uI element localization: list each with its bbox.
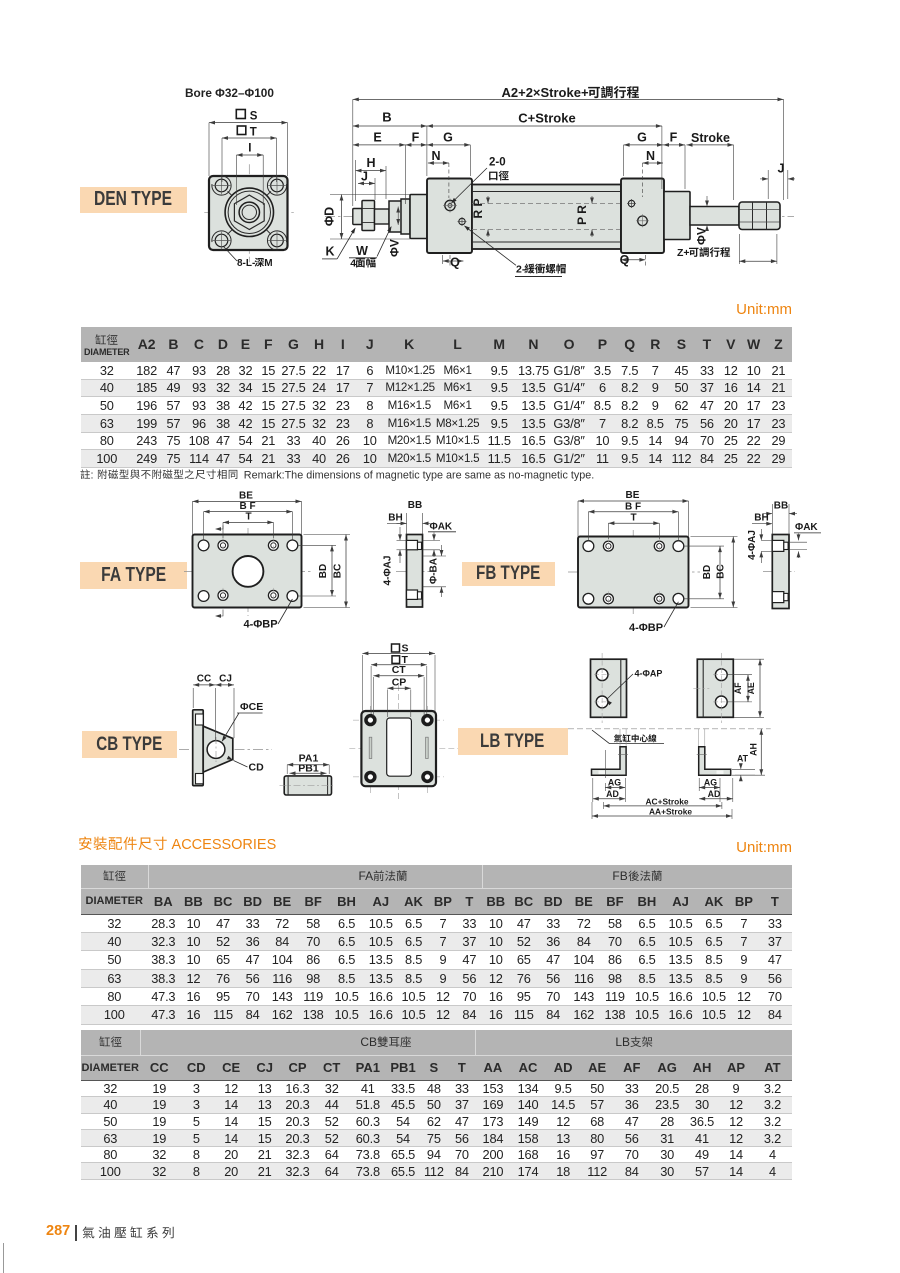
svg-text:ΦCE: ΦCE (240, 701, 263, 713)
svg-text:BC: BC (333, 564, 344, 578)
svg-text:G: G (637, 130, 647, 144)
svg-text:4-ΦAP: 4-ΦAP (635, 669, 663, 679)
svg-text:E: E (373, 130, 381, 144)
svg-text:4-ΦAJ: 4-ΦAJ (747, 530, 758, 560)
svg-text:BB: BB (408, 500, 422, 511)
svg-text:J: J (361, 170, 368, 184)
svg-text:Z+: Z+ (677, 247, 690, 259)
svg-text:Φ-BA: Φ-BA (429, 558, 440, 584)
svg-text:C+Stroke: C+Stroke (518, 111, 575, 126)
svg-text:P R: P R (575, 205, 589, 225)
svg-text:Q: Q (450, 256, 460, 270)
svg-text:AG: AG (608, 778, 621, 788)
svg-text:AA+Stroke: AA+Stroke (649, 807, 692, 817)
svg-text:F: F (670, 130, 678, 144)
svg-text:N: N (431, 149, 440, 163)
svg-text:AH: AH (749, 743, 759, 756)
svg-text:BE: BE (626, 490, 640, 501)
svg-text:AD: AD (708, 789, 721, 799)
svg-text:BH: BH (388, 512, 402, 523)
svg-text:H: H (366, 156, 375, 170)
svg-text:F: F (412, 130, 420, 144)
svg-text:Q: Q (620, 253, 630, 267)
svg-text:T: T (245, 512, 251, 523)
svg-text:CJ: CJ (219, 674, 232, 685)
svg-text:AG: AG (704, 778, 717, 788)
svg-text:S: S (402, 643, 409, 655)
svg-text:K: K (325, 245, 334, 259)
svg-text:4: 4 (350, 258, 356, 270)
svg-text:A2+2: A2+2 (502, 85, 533, 100)
svg-text:CT: CT (392, 664, 407, 676)
svg-text:PB1: PB1 (298, 762, 319, 774)
svg-text:Stroke+: Stroke+ (541, 85, 589, 100)
svg-text:BD: BD (702, 565, 713, 579)
svg-text:Stroke: Stroke (691, 131, 730, 145)
svg-text:CC: CC (197, 674, 211, 685)
svg-text:BC: BC (716, 564, 727, 578)
svg-text:CD: CD (249, 762, 265, 774)
svg-text:ΦD: ΦD (323, 207, 337, 226)
svg-text:4-ΦAJ: 4-ΦAJ (383, 556, 394, 586)
svg-text:M: M (264, 258, 272, 269)
svg-text:B F: B F (625, 501, 641, 512)
svg-text:S: S (250, 111, 258, 123)
svg-text:T: T (630, 512, 636, 523)
svg-text:4-ΦBP: 4-ΦBP (629, 622, 663, 634)
svg-text:CP: CP (392, 676, 407, 688)
svg-text:AT: AT (737, 754, 749, 764)
svg-text:BB: BB (774, 500, 788, 511)
svg-text:ΦAK: ΦAK (795, 522, 818, 533)
svg-text:AF: AF (733, 682, 743, 694)
svg-text:G: G (443, 130, 453, 144)
svg-text:I: I (248, 143, 251, 155)
svg-text:AD: AD (606, 789, 619, 799)
svg-text:J: J (778, 162, 785, 176)
svg-text:AE: AE (746, 682, 756, 694)
svg-text:B F: B F (239, 501, 255, 512)
svg-text:N: N (646, 149, 655, 163)
svg-text:8-L-: 8-L- (237, 258, 255, 269)
svg-text:ΦV: ΦV (388, 239, 402, 257)
svg-text:W: W (356, 244, 368, 258)
svg-text:BD: BD (318, 564, 329, 578)
svg-text:2-: 2- (516, 264, 526, 276)
svg-text:AC+Stroke: AC+Stroke (645, 796, 688, 806)
svg-text:BH: BH (754, 513, 768, 524)
svg-text:R P: R P (471, 198, 485, 218)
svg-text:4-ΦBP: 4-ΦBP (243, 619, 277, 631)
svg-text:2-0: 2-0 (489, 157, 506, 169)
svg-text:BE: BE (239, 491, 253, 502)
svg-text:B: B (382, 110, 391, 125)
svg-text:ΦAK: ΦAK (430, 522, 453, 533)
svg-text:T: T (250, 127, 257, 139)
